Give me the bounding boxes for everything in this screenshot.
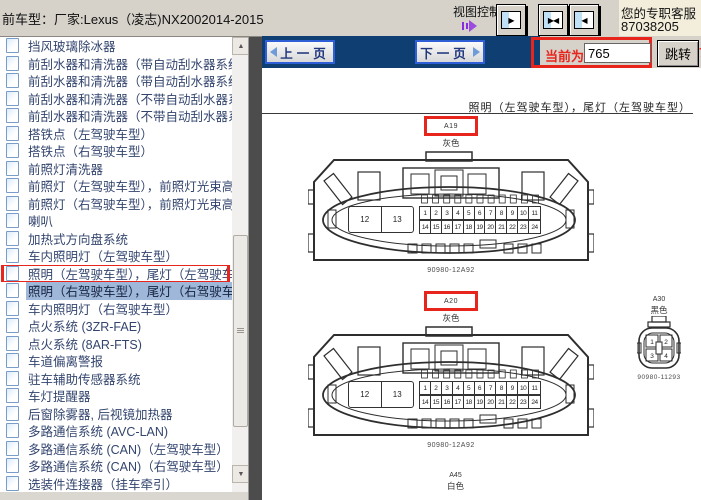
pin-cell: 19 <box>475 396 486 408</box>
sidebar-item-label: 多路通信系统 (CAN)（右驾驶车型） <box>26 457 231 475</box>
svg-text:3: 3 <box>650 353 654 360</box>
pin-cell: 7 <box>485 207 496 219</box>
pin-cell: 24 <box>529 221 540 233</box>
left-arrow-icon <box>270 47 277 57</box>
document-icon <box>6 336 19 351</box>
vehicle-title: 前车型：厂家:Lexus（凌志)NX2002014-2015 <box>2 9 264 28</box>
sidebar-item-label: 车内照明灯（右驾驶车型） <box>26 300 180 318</box>
connector-a30-color: 黑色 <box>650 304 667 316</box>
connector-a19-part-number: 90980-12A92 <box>427 267 475 274</box>
sidebar-item-label: 前照灯（左驾驶车型），前照灯光束高度控制 <box>26 177 232 195</box>
pin-cell: 24 <box>529 396 540 408</box>
document-icon <box>6 283 19 298</box>
pin-cell: 17 <box>453 396 464 408</box>
pin-cell: 11 <box>529 382 540 394</box>
sidebar-item[interactable]: 车道偏离警报 <box>0 352 232 370</box>
connector-a19-drawing: 1213 1234567891011 141516171819202122232… <box>308 150 594 262</box>
connector-a20-highlight: A20 <box>424 291 478 311</box>
connector-a30-part-number: 90980-11293 <box>637 374 680 381</box>
sidebar-item[interactable]: 前照灯（左驾驶车型），前照灯光束高度控制 <box>0 177 232 195</box>
sidebar-item[interactable]: 多路通信系统 (AVC-LAN) <box>0 422 232 440</box>
sidebar-item[interactable]: 搭铁点（左驾驶车型） <box>0 125 232 143</box>
document-icon <box>6 91 19 106</box>
sidebar-item[interactable]: 选装件连接器（挂车牵引） <box>0 475 232 493</box>
document-icon <box>6 318 19 333</box>
document-icon <box>6 458 19 473</box>
sidebar-item-label: 车道偏离警报 <box>26 352 105 370</box>
document-icon <box>6 266 19 281</box>
document-icon <box>6 213 19 228</box>
pin-cell: 2 <box>431 207 442 219</box>
svg-text:1: 1 <box>650 339 654 346</box>
view-control-label: 视图控制 <box>453 3 501 20</box>
pin-cell: 15 <box>431 396 442 408</box>
customer-service-panel: 您的专职客服 87038205 <box>619 0 701 38</box>
document-icon <box>6 441 19 456</box>
connector-a19-pin-row-bottom: 1415161718192021222324 <box>419 220 541 234</box>
pin-cell: 14 <box>420 221 431 233</box>
sidebar-item-label: 前刮水器和清洗器（带自动刮水器系统）（右驾驶车型） <box>26 72 232 90</box>
current-page-label: 当前为 <box>545 46 584 65</box>
pin-cell: 20 <box>485 396 496 408</box>
document-icon <box>6 423 19 438</box>
pane-right-arrow-icon: ▶ <box>501 11 521 29</box>
pin-cell: 20 <box>485 221 496 233</box>
pane-split-button[interactable]: ▶◀ <box>538 4 568 36</box>
pin-cell: 4 <box>453 207 464 219</box>
sidebar-item[interactable]: 车内照明灯（左驾驶车型） <box>0 247 232 265</box>
pin-cell: 23 <box>518 396 529 408</box>
sidebar-item-label: 搭铁点（右驾驶车型） <box>26 142 155 160</box>
scrollbar-thumb[interactable] <box>233 235 248 427</box>
sidebar-item[interactable]: 搭铁点（右驾驶车型） <box>0 142 232 160</box>
pin-cell: 1 <box>420 207 431 219</box>
sidebar-item[interactable]: 喇叭 <box>0 212 232 230</box>
sidebar-item-label: 前刮水器和清洗器（不带自动刮水器系统） <box>26 107 232 125</box>
pin-cell: 6 <box>475 382 486 394</box>
sidebar-item-label: 点火系统 (8AR-FTS) <box>26 335 144 353</box>
sidebar-item[interactable]: 加热式方向盘系统 <box>0 230 232 248</box>
sidebar-item-label: 车灯提醒器 <box>26 387 93 405</box>
connector-a19-block: A19 灰色 <box>308 116 594 274</box>
connector-a30-block: A30 黑色 1 2 3 4 90980-11293 <box>630 296 688 381</box>
sidebar-item-label: 车内照明灯（左驾驶车型） <box>26 247 180 265</box>
document-icon <box>6 476 19 491</box>
jump-button[interactable]: 跳转 <box>657 40 699 67</box>
svg-text:4: 4 <box>664 353 668 360</box>
document-icon <box>6 196 19 211</box>
connector-a20-color: 灰色 <box>442 312 459 324</box>
pin-cell: 17 <box>453 221 464 233</box>
sidebar-item-label: 喇叭 <box>26 212 55 230</box>
document-icon <box>6 388 19 403</box>
pin-cell: 2 <box>431 382 442 394</box>
connector-a20-pin-row-bottom: 1415161718192021222324 <box>419 395 541 409</box>
connector-a20-drawing: 1213 1234567891011 141516171819202122232… <box>308 325 594 437</box>
pin-cell: 10 <box>518 382 529 394</box>
pin-cell: 13 <box>382 382 414 407</box>
next-page-button[interactable]: 下一页 <box>415 40 485 64</box>
pin-cell: 12 <box>349 382 382 407</box>
sidebar-item-label: 搭铁点（左驾驶车型） <box>26 125 155 143</box>
sidebar-item-label: 后窗除雾器, 后视镜加热器 <box>26 405 174 423</box>
scroll-down-icon: ▼ <box>238 471 245 478</box>
connector-a20-part-number: 90980-12A92 <box>427 442 475 449</box>
document-icon <box>6 353 19 368</box>
document-icon <box>6 371 19 386</box>
sidebar-item[interactable]: 点火系统 (8AR-FTS) <box>0 335 232 353</box>
previous-page-button[interactable]: 上一页 <box>265 40 335 64</box>
panel-splitter[interactable] <box>248 37 263 500</box>
pin-cell: 18 <box>464 221 475 233</box>
pin-cell: 19 <box>475 221 486 233</box>
sidebar-item[interactable]: 照明（左驾驶车型），尾灯（左驾驶车型） <box>0 265 232 283</box>
pin-cell: 14 <box>420 396 431 408</box>
document-icon <box>6 406 19 421</box>
pin-cell: 9 <box>507 207 518 219</box>
sidebar-item[interactable]: 前照灯（右驾驶车型），前照灯光束高度控制 <box>0 195 232 213</box>
pin-cell: 11 <box>529 207 540 219</box>
system-list-sidebar: 挡风玻璃除冰器前刮水器和清洗器（带自动刮水器系统）（左驾驶车型）前刮水器和清洗器… <box>0 37 232 492</box>
document-icon <box>6 161 19 176</box>
document-icon <box>6 108 19 123</box>
pin-cell: 21 <box>496 221 507 233</box>
document-icon <box>6 301 19 316</box>
sidebar-item-label: 选装件连接器（挂车牵引） <box>26 475 180 493</box>
pin-cell: 8 <box>496 382 507 394</box>
sidebar-item[interactable]: 照明（右驾驶车型），尾灯（右驾驶车型） <box>0 282 232 300</box>
pin-cell: 5 <box>464 382 475 394</box>
sidebar-item[interactable]: 后窗除雾器, 后视镜加热器 <box>0 405 232 423</box>
connector-a45-color: 白色 <box>447 480 464 492</box>
connector-a20-pin-row-top: 1234567891011 <box>419 381 541 395</box>
pin-cell: 9 <box>507 382 518 394</box>
pin-cell: 10 <box>518 207 529 219</box>
pin-cell: 13 <box>382 207 414 232</box>
connector-a19-id: A19 <box>444 123 458 130</box>
pin-cell: 16 <box>442 221 453 233</box>
sidebar-item[interactable]: 前刮水器和清洗器（带自动刮水器系统）（左驾驶车型） <box>0 55 232 73</box>
sidebar-item-label: 挡风玻璃除冰器 <box>26 37 118 55</box>
pane-expand-left-button[interactable]: ◀ <box>569 4 599 36</box>
sidebar-item-label: 前照灯清洗器 <box>26 160 105 178</box>
connector-a19-color: 灰色 <box>442 137 459 149</box>
connector-a20-large-pins: 1213 <box>348 381 414 408</box>
pin-cell: 8 <box>496 207 507 219</box>
current-page-input[interactable] <box>584 43 651 63</box>
pin-cell: 22 <box>507 221 518 233</box>
connector-a19-large-pins: 1213 <box>348 206 414 233</box>
page-navigation-toolbar: 上一页 下一页 当前为 跳转 76 <box>262 36 701 68</box>
sidebar-item-label: 前刮水器和清洗器（带自动刮水器系统）（左驾驶车型） <box>26 55 232 73</box>
wiring-diagram-page[interactable]: 照明（左驾驶车型），尾灯（左驾驶车型） A19 灰色 <box>262 68 701 500</box>
right-arrow-icon <box>473 47 480 57</box>
pane-both-arrows-icon: ▶◀ <box>543 11 563 29</box>
connector-a20-block: A20 灰色 <box>308 291 594 449</box>
document-icon <box>6 56 19 71</box>
connector-a19-highlight: A19 <box>424 116 478 136</box>
sidebar-item[interactable]: 点火系统 (3ZR-FAE) <box>0 317 232 335</box>
sidebar-item[interactable]: 车内照明灯（右驾驶车型） <box>0 300 232 318</box>
pin-cell: 3 <box>442 207 453 219</box>
pane-left-arrow-icon: ◀ <box>574 11 594 29</box>
sidebar-item-label: 照明（左驾驶车型），尾灯（左驾驶车型） <box>26 265 232 283</box>
pin-cell: 4 <box>453 382 464 394</box>
connector-a19-pin-row-top: 1234567891011 <box>419 206 541 220</box>
sidebar-scrollbar[interactable]: ▲ ▼ <box>232 37 248 492</box>
sidebar-item[interactable]: 多路通信系统 (CAN)（右驾驶车型） <box>0 457 232 475</box>
pin-cell: 6 <box>475 207 486 219</box>
sidebar-item[interactable]: 前刮水器和清洗器（不带自动刮水器系统） <box>0 107 232 125</box>
pin-cell: 3 <box>442 382 453 394</box>
connector-a20-id: A20 <box>444 298 458 305</box>
document-icon <box>6 73 19 88</box>
sidebar-item-label: 驻车辅助传感器系统 <box>26 370 143 388</box>
sidebar-item-label: 前刮水器和清洗器（不带自动刮水器系统） <box>26 90 232 108</box>
pane-expand-right-button[interactable]: ▶ <box>496 4 526 36</box>
pin-cell: 7 <box>485 382 496 394</box>
sidebar-item-label: 加热式方向盘系统 <box>26 230 130 248</box>
sidebar-item[interactable]: 挡风玻璃除冰器 <box>0 37 232 55</box>
document-icon <box>6 178 19 193</box>
sidebar-item-label: 多路通信系统 (AVC-LAN) <box>26 422 170 440</box>
document-icon <box>6 248 19 263</box>
pin-cell: 22 <box>507 396 518 408</box>
sidebar-list: 挡风玻璃除冰器前刮水器和清洗器（带自动刮水器系统）（左驾驶车型）前刮水器和清洗器… <box>0 37 232 492</box>
sidebar-item[interactable]: 前刮水器和清洗器（带自动刮水器系统）（右驾驶车型） <box>0 72 232 90</box>
pin-cell: 18 <box>464 396 475 408</box>
scroll-up-icon: ▲ <box>238 43 245 50</box>
sidebar-item[interactable]: 驻车辅助传感器系统 <box>0 370 232 388</box>
pin-cell: 16 <box>442 396 453 408</box>
sidebar-item[interactable]: 车灯提醒器 <box>0 387 232 405</box>
pin-cell: 12 <box>349 207 382 232</box>
sidebar-item[interactable]: 前刮水器和清洗器（不带自动刮水器系统） <box>0 90 232 108</box>
document-icon <box>6 143 19 158</box>
pin-cell: 1 <box>420 382 431 394</box>
pin-cell: 21 <box>496 396 507 408</box>
sidebar-item-label: 前照灯（右驾驶车型），前照灯光束高度控制 <box>26 195 232 213</box>
sidebar-bottom-strip <box>0 492 248 500</box>
sidebar-item-label: 多路通信系统 (CAN)（左驾驶车型） <box>26 440 231 458</box>
title-bar: 前车型：厂家:Lexus（凌志)NX2002014-2015 视图控制 ▶ ▶◀… <box>0 0 701 37</box>
document-icon <box>6 126 19 141</box>
sidebar-item-label: 照明（右驾驶车型），尾灯（右驾驶车型） <box>26 282 232 300</box>
connector-a30-drawing: 1 2 3 4 <box>637 316 681 370</box>
document-icon <box>6 38 19 53</box>
connector-a30-id: A30 <box>653 296 665 303</box>
service-phone: 87038205 <box>621 19 679 34</box>
pin-cell: 5 <box>464 207 475 219</box>
diagram-title-rule <box>262 113 693 114</box>
connector-a45-id: A45 <box>449 472 461 479</box>
sidebar-item-label: 点火系统 (3ZR-FAE) <box>26 317 143 335</box>
pin-cell: 15 <box>431 221 442 233</box>
connector-a45-drawing <box>368 494 543 500</box>
sidebar-item[interactable]: 前照灯清洗器 <box>0 160 232 178</box>
sidebar-item[interactable]: 多路通信系统 (CAN)（左驾驶车型） <box>0 440 232 458</box>
view-control-icon <box>462 20 482 32</box>
svg-text:2: 2 <box>664 339 668 346</box>
pin-cell: 23 <box>518 221 529 233</box>
document-icon <box>6 231 19 246</box>
connector-a45-block: A45 白色 <box>368 472 543 500</box>
